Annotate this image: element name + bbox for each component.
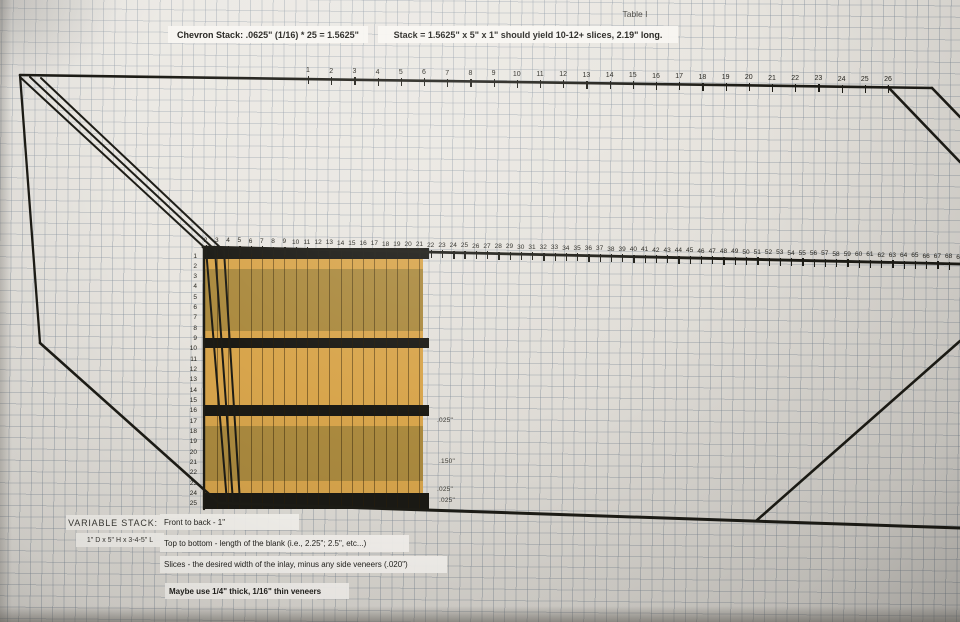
scale-tick (814, 259, 815, 267)
left-scale-number: 18 (182, 427, 197, 436)
scale-tick (510, 252, 511, 260)
scale-tick (949, 262, 950, 270)
mid-scale-number: 4 (226, 237, 230, 245)
scale-tick (746, 257, 747, 265)
scale-tick (494, 79, 495, 87)
scale-tick (555, 253, 556, 261)
mid-scale-number: 36 (585, 245, 592, 253)
top-scale-number: 25 (861, 76, 869, 84)
mid-scale-number: 63 (889, 252, 896, 260)
mid-scale-number: 65 (911, 252, 918, 260)
scale-tick (476, 251, 477, 259)
scale-tick (842, 85, 843, 93)
mid-scale-number: 10 (292, 239, 299, 247)
scale-tick (577, 253, 578, 261)
scale-tick (408, 250, 409, 258)
scale-tick (363, 249, 364, 257)
scale-tick (464, 251, 465, 259)
scale-tick (633, 255, 634, 263)
mid-scale-number: 8 (271, 238, 275, 246)
top-scale-number: 16 (652, 73, 660, 81)
scale-tick (532, 252, 533, 260)
top-scale-number: 24 (838, 76, 846, 84)
left-scale-number: 21 (182, 458, 197, 467)
mid-scale-number: 31 (528, 244, 535, 252)
scale-tick (712, 256, 713, 264)
scale-tick (206, 245, 207, 253)
scale-tick (757, 257, 758, 265)
mid-scale-number: 3 (215, 237, 219, 245)
scale-tick (904, 261, 905, 269)
mid-scale-number: 50 (742, 249, 749, 257)
scale-tick (341, 248, 342, 256)
mid-scale-number: 66 (923, 253, 930, 261)
top-scale-number: 1 (306, 67, 310, 75)
scale-tick (543, 253, 544, 261)
mid-scale-number: 6 (249, 238, 253, 246)
mid-scale-number: 18 (382, 241, 389, 249)
left-scale-number: 23 (182, 479, 197, 488)
scale-tick (622, 254, 623, 262)
mid-scale-number: 33 (551, 244, 558, 252)
scale-tick (702, 83, 703, 91)
scale-tick (915, 261, 916, 269)
scale-tick (273, 247, 274, 255)
chevron-line-2 (30, 77, 233, 502)
scale-tick (540, 80, 541, 88)
scale-tick (442, 250, 443, 258)
scale-tick (588, 254, 589, 262)
scale-tick (352, 248, 353, 256)
note-front-to-back: Front to back - 1" (160, 514, 299, 530)
mid-scale-number: 47 (709, 248, 716, 256)
scale-tick (678, 256, 679, 264)
stack-yield-formula: Stack = 1.5625" x 5" x 1" should yield 1… (378, 26, 678, 43)
left-scale-number: 5 (182, 293, 197, 302)
top-scale-number: 21 (768, 75, 776, 83)
top-scale-number: 6 (422, 69, 426, 77)
top-scale-number: 23 (814, 75, 822, 83)
scale-tick (401, 78, 402, 86)
mid-scale-number: 37 (596, 245, 603, 253)
left-scale-number: 24 (182, 489, 197, 498)
mid-scale-number: 22 (427, 242, 434, 250)
measurement-label: .025" (437, 417, 453, 424)
scale-tick (296, 247, 297, 255)
mid-scale-number: 21 (416, 241, 423, 249)
scale-tick (447, 79, 448, 87)
scale-tick (795, 84, 796, 92)
mid-scale-number: 28 (495, 243, 502, 251)
mid-scale-number: 39 (618, 246, 625, 254)
scale-tick (354, 77, 355, 85)
scale-tick (397, 249, 398, 257)
upper-right-diagonal-outer (932, 88, 960, 117)
scale-tick (888, 85, 889, 93)
mid-scale-number: 54 (787, 250, 794, 258)
top-scale-number: 20 (745, 74, 753, 82)
scale-tick (825, 259, 826, 267)
mid-scale-number: 14 (337, 240, 344, 248)
left-scale-number: 2 (182, 262, 197, 271)
scale-tick (780, 258, 781, 266)
left-scale-number: 19 (182, 437, 197, 446)
scale-tick (308, 76, 309, 84)
mid-scale-number: 5 (237, 237, 241, 245)
mid-scale-number: 7 (260, 238, 264, 246)
scale-tick (735, 257, 736, 265)
top-scale-number: 10 (513, 71, 521, 79)
mid-scale-number: 35 (573, 245, 580, 253)
scale-tick (723, 257, 724, 265)
scale-tick (329, 248, 330, 256)
scale-tick (667, 255, 668, 263)
mid-scale-number: 24 (450, 242, 457, 250)
mid-scale-number: 13 (326, 239, 333, 247)
mid-scale-number: 46 (697, 248, 704, 256)
measurement-label: .025" (437, 486, 453, 493)
left-scale-number: 17 (182, 417, 197, 426)
mid-scale-number: 25 (461, 242, 468, 250)
scale-tick (424, 78, 425, 86)
photo-of-diagram: 1234567891011121314151617181920212223242… (0, 0, 960, 622)
left-scale-number: 12 (182, 365, 197, 374)
left-scale-number: 11 (182, 355, 197, 364)
lower-right-diagonal (756, 341, 960, 521)
scale-tick (679, 82, 680, 90)
scale-tick (563, 80, 564, 88)
scale-tick (870, 260, 871, 268)
mid-scale-number: 55 (799, 250, 806, 258)
left-scale-number: 22 (182, 468, 197, 477)
left-scale-number: 15 (182, 396, 197, 405)
left-scale-number: 1 (182, 252, 197, 261)
left-scale-number: 20 (182, 448, 197, 457)
mid-scale-number: 20 (405, 241, 412, 249)
top-scale-number: 4 (376, 69, 380, 77)
scale-tick (633, 81, 634, 89)
left-scale-number: 6 (182, 303, 197, 312)
mid-scale-number: 12 (314, 239, 321, 247)
mid-scale-number: 11 (303, 239, 310, 247)
scale-tick (791, 258, 792, 266)
scale-tick (749, 83, 750, 91)
mid-scale-number: 2 (204, 237, 208, 245)
scale-tick (307, 247, 308, 255)
mid-scale-number: 26 (472, 243, 479, 251)
mid-scale-number: 45 (686, 247, 693, 255)
mid-scale-number: 44 (675, 247, 682, 255)
scale-tick (453, 251, 454, 259)
scale-tick (498, 252, 499, 260)
mid-scale-number: 67 (934, 253, 941, 261)
mid-scale-number: 61 (866, 251, 873, 259)
scale-tick (470, 79, 471, 87)
mid-scale-number: 42 (652, 247, 659, 255)
scale-tick (610, 81, 611, 89)
left-scale-number: 3 (182, 272, 197, 281)
mid-scale-number: 60 (855, 251, 862, 259)
scale-tick (318, 248, 319, 256)
measurement-label: .150" (439, 458, 455, 465)
top-scale-number: 14 (606, 72, 614, 80)
mid-scale-number: 41 (641, 246, 648, 254)
scale-tick (926, 261, 927, 269)
scale-tick (701, 256, 702, 264)
scale-tick (611, 254, 612, 262)
left-scale-number: 7 (182, 313, 197, 322)
scale-tick (517, 80, 518, 88)
scale-tick (331, 77, 332, 85)
top-scale-number: 3 (352, 68, 356, 76)
mid-scale-number: 48 (720, 248, 727, 256)
mid-scale-number: 59 (844, 251, 851, 259)
scale-tick (386, 249, 387, 257)
scale-tick (251, 246, 252, 254)
scale-tick (802, 258, 803, 266)
left-scale-number: 9 (182, 334, 197, 343)
mid-scale-number: 30 (517, 244, 524, 252)
scale-tick (217, 245, 218, 253)
top-scale-number: 7 (445, 70, 449, 78)
scale-tick (431, 250, 432, 258)
left-scale-number: 16 (182, 406, 197, 415)
scale-tick (772, 84, 773, 92)
top-scale-number: 18 (698, 74, 706, 82)
mid-scale-number: 34 (562, 245, 569, 253)
left-edge-line (20, 75, 40, 343)
mid-scale-number: 49 (731, 248, 738, 256)
mid-scale-number: 17 (371, 240, 378, 248)
scale-tick (892, 260, 893, 268)
scale-tick (818, 84, 819, 92)
top-scale-number: 8 (468, 70, 472, 78)
scale-tick (865, 85, 866, 93)
mid-scale-number: 40 (630, 246, 637, 254)
mid-scale-number: 19 (393, 241, 400, 249)
top-scale-number: 26 (884, 76, 892, 84)
scale-tick (521, 252, 522, 260)
scale-tick (656, 255, 657, 263)
top-scale-number: 9 (492, 70, 496, 78)
mid-scale-number: 29 (506, 243, 513, 251)
scale-tick (656, 82, 657, 90)
mid-scale-number: 58 (832, 251, 839, 259)
scale-tick (726, 83, 727, 91)
top-scale-number: 12 (559, 71, 567, 79)
scale-tick (881, 260, 882, 268)
scale-tick (859, 260, 860, 268)
mid-scale-number: 69 (956, 254, 960, 262)
mid-scale-number: 53 (776, 249, 783, 257)
left-scale-number: 8 (182, 324, 197, 333)
variable-stack-heading: VARIABLE STACK: (66, 515, 160, 530)
top-scale-number: 13 (582, 72, 590, 80)
left-scale-number: 4 (182, 282, 197, 291)
scale-tick (378, 78, 379, 86)
mid-scale-number: 23 (438, 242, 445, 250)
scale-tick (239, 246, 240, 254)
top-scale-number: 22 (791, 75, 799, 83)
left-scale-number: 14 (182, 386, 197, 395)
mid-scale-number: 64 (900, 252, 907, 260)
upper-right-diagonal-inner (888, 87, 960, 162)
left-scale-number: 25 (182, 499, 197, 508)
scale-tick (645, 255, 646, 263)
left-scale-number: 13 (182, 375, 197, 384)
scale-tick (262, 246, 263, 254)
page-title: Table I (585, 9, 685, 19)
variable-stack-dimensions: 1" D x 5" H x 3-4-5" L (76, 533, 164, 547)
top-scale-number: 15 (629, 72, 637, 80)
scale-tick (836, 259, 837, 267)
mid-scale-number: 57 (821, 250, 828, 258)
mid-scale-number: 43 (664, 247, 671, 255)
mid-scale-number: 9 (283, 238, 287, 246)
scale-tick (566, 253, 567, 261)
mid-scale-number: 56 (810, 250, 817, 258)
note-veneer-thickness: Maybe use 1/4" thick, 1/16" thin veneers (165, 583, 349, 599)
chevron-stack-formula: Chevron Stack: .0625" (1/16) * 25 = 1.56… (168, 26, 368, 43)
note-slices: Slices - the desired width of the inlay,… (160, 556, 447, 573)
scale-tick (487, 251, 488, 259)
scale-tick (419, 250, 420, 258)
mid-scale-number: 38 (607, 246, 614, 254)
top-scale-number: 2 (329, 68, 333, 76)
top-scale-number: 11 (536, 71, 543, 79)
scale-tick (586, 81, 587, 89)
scale-tick (284, 247, 285, 255)
mid-scale-number: 32 (540, 244, 547, 252)
scale-tick (690, 256, 691, 264)
mid-scale-number: 68 (945, 253, 952, 261)
top-scale-number: 17 (675, 73, 683, 81)
mid-scale-number: 51 (754, 249, 761, 257)
mid-scale-number: 16 (360, 240, 367, 248)
top-scale-number: 5 (399, 69, 403, 77)
bottom-edge-line (219, 503, 960, 528)
scale-tick (937, 261, 938, 269)
left-scale-number: 10 (182, 344, 197, 353)
scale-tick (600, 254, 601, 262)
scale-tick (847, 259, 848, 267)
measurement-label: .025" (439, 497, 455, 504)
scale-tick (769, 258, 770, 266)
scale-tick (374, 249, 375, 257)
mid-scale-number: 27 (483, 243, 490, 251)
scale-tick (228, 246, 229, 254)
mid-scale-number: 52 (765, 249, 772, 257)
note-top-to-bottom: Top to bottom - length of the blank (i.e… (160, 535, 409, 552)
top-scale-number: 19 (722, 74, 730, 82)
mid-scale-number: 15 (348, 240, 355, 248)
mid-scale-number: 62 (877, 252, 884, 260)
